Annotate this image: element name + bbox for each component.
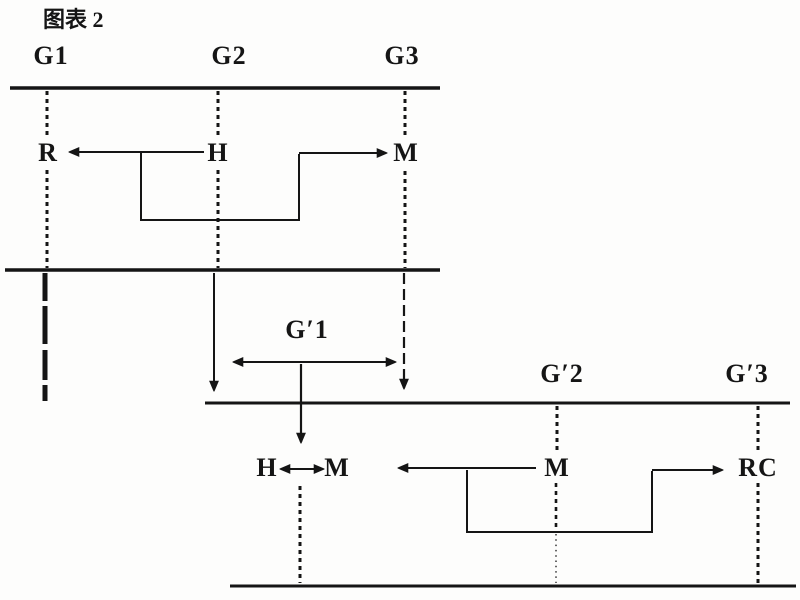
node-m: M	[393, 140, 419, 166]
node-rc: RC	[738, 455, 778, 481]
label-g-prime-2: G′2	[540, 361, 584, 387]
figure-2-diagram: 图表 2 G1 G2 G3 R H M G′1 G′2 G′3 H M M RC	[0, 0, 800, 600]
label-g-prime-1: G′1	[285, 317, 329, 343]
node-m-pair: M	[324, 455, 350, 481]
node-r: R	[38, 140, 58, 166]
label-g2: G2	[211, 43, 246, 69]
label-g3: G3	[384, 43, 419, 69]
label-g-prime-3: G′3	[725, 361, 769, 387]
node-h-second: H	[256, 455, 277, 481]
label-g1: G1	[33, 43, 68, 69]
diagram-canvas	[0, 0, 800, 600]
figure-caption: 图表 2	[43, 9, 104, 31]
node-m-second: M	[544, 455, 570, 481]
node-h: H	[207, 140, 228, 166]
